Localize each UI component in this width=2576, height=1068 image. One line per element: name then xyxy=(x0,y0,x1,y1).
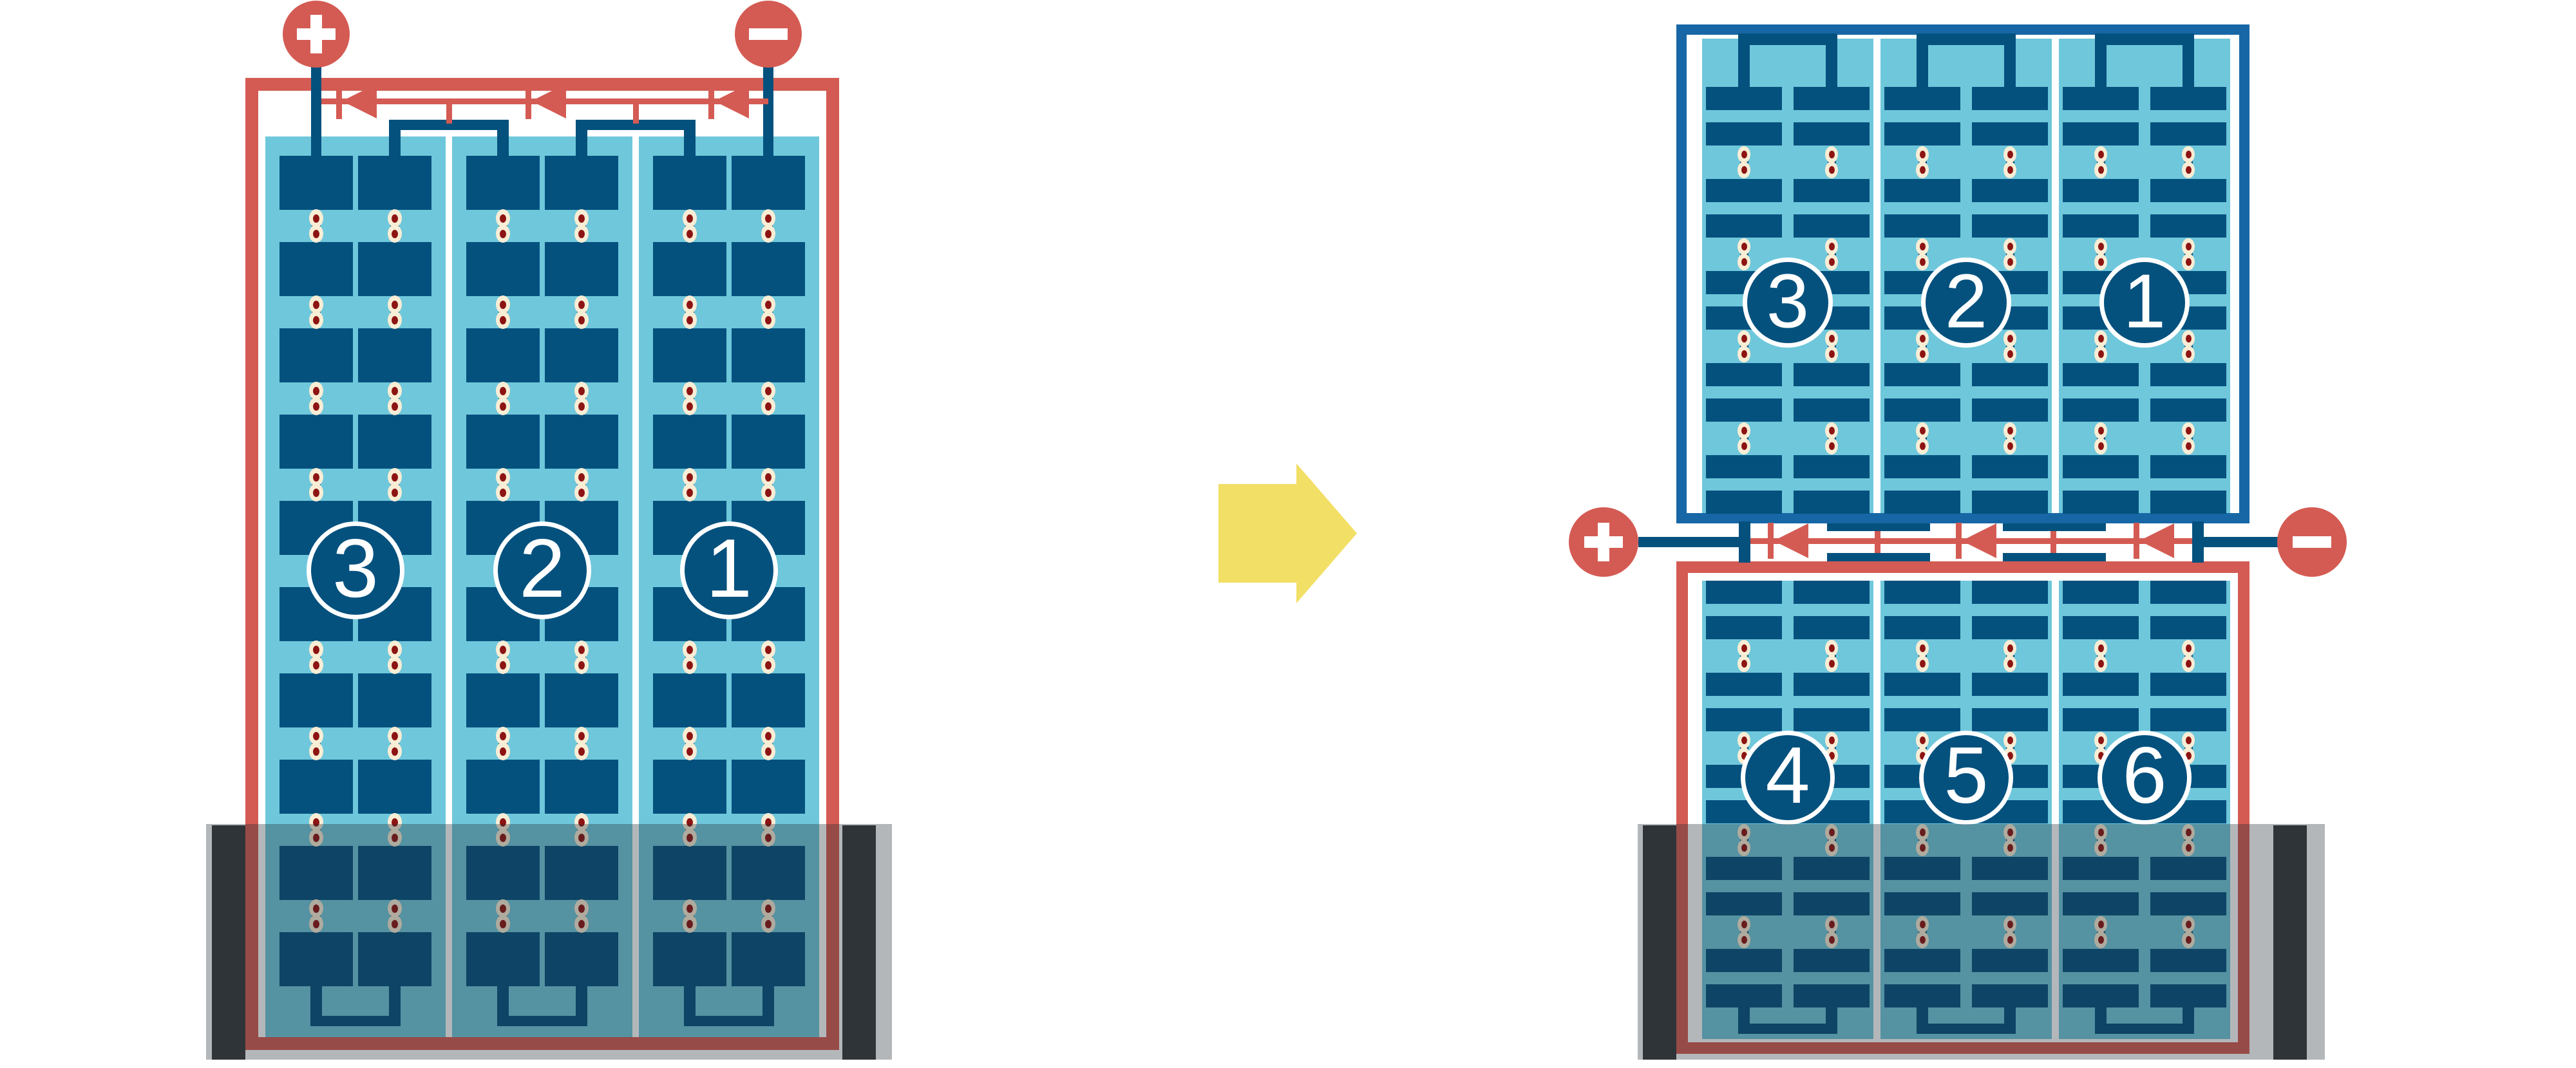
solder-joint-core xyxy=(1920,736,1926,744)
solder-joint-core xyxy=(392,732,398,740)
solder-joint-core xyxy=(2007,736,2013,744)
solder-joint-core xyxy=(1920,442,1926,450)
substring-number: 1 xyxy=(2123,257,2166,345)
solder-joint-core xyxy=(1829,350,1835,358)
solder-joint-core xyxy=(500,387,506,395)
bypass-diode-icon xyxy=(714,84,749,118)
solar-cell xyxy=(1794,491,1870,514)
solder-joint-core xyxy=(578,230,585,238)
solar-cell xyxy=(1972,708,2048,731)
solar-cell xyxy=(2150,398,2226,422)
solar-cell xyxy=(358,760,431,814)
solar-cell xyxy=(1884,581,1960,604)
solar-cell xyxy=(1706,87,1782,110)
solder-joint-core xyxy=(2186,644,2192,652)
solder-joint-core xyxy=(2098,350,2104,358)
solder-joint-core xyxy=(1741,442,1747,450)
terminal-wire xyxy=(763,64,773,156)
solar-cell xyxy=(2063,398,2139,422)
solar-cell xyxy=(1794,708,1870,731)
solar-cell xyxy=(466,156,540,210)
solder-joint-core xyxy=(765,661,772,670)
solder-joint-core xyxy=(313,661,319,670)
busbar-top-connector xyxy=(1917,33,2016,87)
solder-joint-core xyxy=(1920,350,1926,358)
shading-overlay xyxy=(206,824,892,1060)
bypass-diode-icon xyxy=(531,84,566,118)
busbar-tab xyxy=(1827,523,1930,531)
bypass-diode-icon xyxy=(1774,523,1808,558)
solder-joint-core xyxy=(392,747,398,756)
solder-joint-core xyxy=(2186,335,2192,342)
solder-joint-core xyxy=(578,646,585,654)
solder-joint-core xyxy=(1741,736,1747,744)
solder-joint-core xyxy=(687,747,693,756)
solar-cell xyxy=(545,760,618,814)
solar-cell xyxy=(1972,616,2048,639)
solar-cell xyxy=(279,156,353,210)
solar-cell xyxy=(1794,179,1870,202)
solar-cell xyxy=(653,760,726,814)
solar-cell xyxy=(653,328,726,382)
solder-joint-core xyxy=(2098,258,2104,266)
solder-joint-core xyxy=(687,214,693,223)
solder-joint-core xyxy=(2186,442,2192,450)
solder-joint-core xyxy=(1920,243,1926,250)
solar-cell xyxy=(1794,616,1870,639)
solder-joint-core xyxy=(392,402,398,411)
solder-joint-core xyxy=(1741,151,1747,158)
solar-cell xyxy=(545,242,618,296)
solar-cell xyxy=(1972,122,2048,145)
solder-joint-core xyxy=(578,473,585,482)
solder-joint-core xyxy=(2186,151,2192,158)
solder-joint-core xyxy=(392,387,398,395)
solder-joint-core xyxy=(765,301,772,309)
solar-cell xyxy=(2063,363,2139,386)
busbar-tab xyxy=(2003,553,2106,561)
solder-joint-core xyxy=(578,402,585,411)
solar-cell xyxy=(1706,581,1782,604)
solar-cell xyxy=(1706,616,1782,639)
solder-joint-core xyxy=(578,301,585,309)
bypass-diode-icon xyxy=(2134,523,2139,559)
solar-cell xyxy=(2150,581,2226,604)
solar-cell xyxy=(732,673,805,727)
solar-cell xyxy=(279,760,353,814)
minus-icon xyxy=(749,28,788,40)
solder-joint-core xyxy=(687,230,693,238)
substring-number-badge: 4 xyxy=(1741,731,1835,825)
substring-number: 1 xyxy=(706,521,752,616)
solar-cell xyxy=(1884,708,1960,731)
solder-joint-core xyxy=(392,316,398,324)
solder-joint-core xyxy=(2186,258,2192,266)
solder-joint-core xyxy=(578,214,585,223)
substring-number: 4 xyxy=(1766,730,1810,821)
solar-cell xyxy=(1972,398,2048,422)
solder-joint-core xyxy=(1920,335,1926,342)
solder-joint-core xyxy=(313,732,319,740)
solder-joint-core xyxy=(765,402,772,411)
solder-joint-core xyxy=(687,402,693,411)
solder-joint-core xyxy=(500,316,506,324)
solar-cell xyxy=(545,328,618,382)
bypass-diode-icon xyxy=(336,83,342,119)
substring-number-badge: 6 xyxy=(2098,731,2192,825)
solder-joint-core xyxy=(500,747,506,756)
bypass-diode-icon xyxy=(526,83,531,119)
solar-cell xyxy=(1794,455,1870,478)
solder-joint-core xyxy=(2007,166,2013,174)
solar-cell xyxy=(732,328,805,382)
solar-cell xyxy=(653,156,726,210)
solder-joint-core xyxy=(1829,258,1835,266)
solder-joint-core xyxy=(500,489,506,497)
solar-cell xyxy=(2150,87,2226,110)
solar-cell xyxy=(545,415,618,469)
solder-joint-core xyxy=(2186,660,2192,668)
plus-icon xyxy=(310,15,322,53)
solar-cell xyxy=(2150,708,2226,731)
solder-joint-core xyxy=(313,214,319,223)
solder-joint-core xyxy=(1829,427,1835,435)
substring-number-badge: 1 xyxy=(680,521,778,619)
solder-joint-core xyxy=(1741,335,1747,342)
solder-joint-core xyxy=(578,661,585,670)
solder-joint-core xyxy=(500,214,506,223)
bypass-diode-icon xyxy=(1956,523,1962,559)
solar-cell xyxy=(2150,616,2226,639)
solder-joint-core xyxy=(578,732,585,740)
solder-joint-core xyxy=(2098,427,2104,435)
solar-cell xyxy=(732,760,805,814)
solder-joint-core xyxy=(1920,151,1926,158)
solder-joint-core xyxy=(578,316,585,324)
solder-joint-core xyxy=(392,661,398,670)
solar-cell xyxy=(1794,581,1870,604)
solar-cell xyxy=(2150,491,2226,514)
solder-joint-core xyxy=(765,732,772,740)
solar-cell xyxy=(279,328,353,382)
terminal-wire xyxy=(1638,537,1745,547)
solder-joint-core xyxy=(2098,442,2104,450)
solar-cell xyxy=(2150,214,2226,238)
solder-joint-core xyxy=(1829,442,1835,450)
solder-joint-core xyxy=(2007,427,2013,435)
solder-joint-core xyxy=(1920,427,1926,435)
substring-number-badge: 2 xyxy=(1921,258,2011,348)
solder-joint-core xyxy=(1829,644,1835,652)
solder-joint-core xyxy=(313,387,319,395)
busbar-tab xyxy=(2003,523,2106,531)
solder-joint-core xyxy=(500,301,506,309)
solder-joint-core xyxy=(500,646,506,654)
solder-joint-core xyxy=(2007,243,2013,250)
substring-number: 5 xyxy=(1944,730,1989,821)
substring-number: 3 xyxy=(332,521,379,616)
solar-cell xyxy=(1972,673,2048,696)
solder-joint-core xyxy=(2007,442,2013,450)
solder-joint-core xyxy=(392,473,398,482)
substring-number-badge: 3 xyxy=(307,521,404,619)
solar-cell xyxy=(2063,581,2139,604)
solder-joint-core xyxy=(2098,335,2104,342)
solar-cell xyxy=(1794,398,1870,422)
terminal-wire xyxy=(311,64,321,156)
solder-joint-core xyxy=(765,214,772,223)
solder-joint-core xyxy=(392,230,398,238)
solder-joint-core xyxy=(392,214,398,223)
busbar-top-connector xyxy=(576,120,696,156)
bypass-diode-icon xyxy=(342,84,377,118)
solar-cell xyxy=(1972,179,2048,202)
solar-cell xyxy=(2063,87,2139,110)
solder-joint-core xyxy=(1920,644,1926,652)
solder-joint-core xyxy=(313,230,319,238)
solder-joint-core xyxy=(1741,427,1747,435)
solar-cell xyxy=(1972,214,2048,238)
solar-cell xyxy=(1972,491,2048,514)
solder-joint-core xyxy=(2007,335,2013,342)
solder-joint-core xyxy=(313,747,319,756)
solar-cell xyxy=(2150,673,2226,696)
solar-cell xyxy=(2063,179,2139,202)
solder-joint-core xyxy=(2098,243,2104,250)
solder-joint-core xyxy=(765,230,772,238)
solder-joint-core xyxy=(765,473,772,482)
solder-joint-core xyxy=(500,230,506,238)
solder-joint-core xyxy=(1920,660,1926,668)
solar-cell xyxy=(1972,87,2048,110)
solder-joint-core xyxy=(2098,644,2104,652)
solar-cell xyxy=(2063,491,2139,514)
solder-joint-core xyxy=(313,402,319,411)
solar-cell xyxy=(1972,455,2048,478)
solar-cell xyxy=(466,415,540,469)
solder-joint-core xyxy=(2098,166,2104,174)
solder-joint-core xyxy=(2098,660,2104,668)
solder-joint-core xyxy=(500,473,506,482)
solar-cell xyxy=(732,242,805,296)
busbar-top-connector xyxy=(1738,33,1837,87)
solar-cell xyxy=(1884,673,1960,696)
solar-cell xyxy=(279,673,353,727)
solder-joint-core xyxy=(687,646,693,654)
solder-joint-core xyxy=(313,646,319,654)
solar-cell xyxy=(2063,616,2139,639)
solder-joint-core xyxy=(578,489,585,497)
substring-number-badge: 3 xyxy=(1743,258,1833,348)
solder-joint-core xyxy=(1829,736,1835,744)
solder-joint-core xyxy=(392,646,398,654)
solder-joint-core xyxy=(687,316,693,324)
solar-cell xyxy=(466,673,540,727)
solder-joint-core xyxy=(313,301,319,309)
solar-cell xyxy=(358,673,431,727)
solder-joint-core xyxy=(500,732,506,740)
busbar-top-connector xyxy=(2095,33,2194,87)
solar-cell xyxy=(732,415,805,469)
solder-joint-core xyxy=(313,489,319,497)
solar-cell xyxy=(1706,179,1782,202)
bypass-diode-icon xyxy=(1962,523,1996,558)
solder-joint-core xyxy=(2186,166,2192,174)
solder-joint-core xyxy=(1829,243,1835,250)
solder-joint-core xyxy=(500,661,506,670)
solder-joint-core xyxy=(2007,350,2013,358)
solar-cell xyxy=(653,415,726,469)
solder-joint-core xyxy=(1920,166,1926,174)
solar-cell xyxy=(1706,491,1782,514)
solar-cell xyxy=(732,156,805,210)
solder-joint-core xyxy=(1829,151,1835,158)
plus-icon xyxy=(1598,523,1609,561)
solder-joint-core xyxy=(2007,258,2013,266)
solar-cell xyxy=(2063,708,2139,731)
solar-cell xyxy=(1706,122,1782,145)
solar-cell xyxy=(2063,122,2139,145)
solder-joint-core xyxy=(687,489,693,497)
solar-cell xyxy=(653,673,726,727)
solar-cell xyxy=(1706,673,1782,696)
solar-cell xyxy=(1884,616,1960,639)
shading-overlay xyxy=(1638,824,2325,1060)
solar-cell xyxy=(2150,179,2226,202)
substring-number: 6 xyxy=(2123,730,2167,821)
solder-joint-core xyxy=(687,387,693,395)
solar-cell xyxy=(2150,122,2226,145)
solar-cell xyxy=(1884,363,1960,386)
solder-joint-core xyxy=(2007,660,2013,668)
solar-cell xyxy=(1884,398,1960,422)
solder-joint-core xyxy=(687,661,693,670)
solder-joint-core xyxy=(392,489,398,497)
solar-cell xyxy=(466,328,540,382)
substring-number: 2 xyxy=(519,521,565,616)
busbar-top-connector xyxy=(389,120,509,156)
solder-joint-core xyxy=(687,732,693,740)
solar-cell xyxy=(545,156,618,210)
substring-number-badge: 5 xyxy=(1919,731,2013,825)
solar-cell xyxy=(2063,673,2139,696)
solder-joint-core xyxy=(765,747,772,756)
solar-cell xyxy=(358,156,431,210)
solar-cell xyxy=(2150,363,2226,386)
solar-cell xyxy=(1884,214,1960,238)
solder-joint-core xyxy=(1741,350,1747,358)
solar-cell xyxy=(1884,87,1960,110)
diode-tap-line xyxy=(633,101,639,124)
substring-number: 3 xyxy=(1766,257,1809,345)
solder-joint-core xyxy=(2186,427,2192,435)
solar-cell xyxy=(2063,455,2139,478)
solder-joint-core xyxy=(1829,660,1835,668)
solder-joint-core xyxy=(313,473,319,482)
solder-joint-core xyxy=(2007,151,2013,158)
solar-cell xyxy=(1884,491,1960,514)
solder-joint-core xyxy=(2007,644,2013,652)
solder-joint-core xyxy=(2186,736,2192,744)
solar-cell xyxy=(2063,214,2139,238)
solder-joint-core xyxy=(1741,660,1747,668)
solder-joint-core xyxy=(1741,258,1747,266)
solar-cell xyxy=(653,242,726,296)
bypass-diode-icon xyxy=(2139,523,2174,558)
solder-joint-core xyxy=(1741,644,1747,652)
solar-cell xyxy=(358,242,431,296)
solar-cell xyxy=(466,760,540,814)
solar-cell xyxy=(279,242,353,296)
solder-joint-core xyxy=(313,316,319,324)
solar-cell xyxy=(279,415,353,469)
solder-joint-core xyxy=(578,387,585,395)
substring-number-badge: 2 xyxy=(493,521,591,619)
solar-cell xyxy=(1706,708,1782,731)
solar-cell xyxy=(1794,87,1870,110)
solar-cell xyxy=(1706,363,1782,386)
solar-cell xyxy=(1706,398,1782,422)
solder-joint-core xyxy=(1829,166,1835,174)
solar-cell xyxy=(1884,122,1960,145)
solder-joint-core xyxy=(1741,166,1747,174)
bypass-diode-icon xyxy=(1768,523,1774,559)
solar-cell xyxy=(1794,673,1870,696)
solder-joint-core xyxy=(765,489,772,497)
solar-cell xyxy=(358,415,431,469)
solder-joint-core xyxy=(687,473,693,482)
solder-joint-core xyxy=(1741,243,1747,250)
solder-joint-core xyxy=(2186,350,2192,358)
solder-joint-core xyxy=(765,316,772,324)
minus-icon xyxy=(2293,536,2331,548)
diode-tap-line xyxy=(446,101,452,124)
solar-cell xyxy=(545,673,618,727)
solar-cell xyxy=(358,328,431,382)
solar-cell xyxy=(1794,122,1870,145)
solar-cell xyxy=(1884,179,1960,202)
solar-cell xyxy=(1972,363,2048,386)
solder-joint-core xyxy=(500,402,506,411)
substring-number-badge: 1 xyxy=(2099,258,2190,348)
solder-joint-core xyxy=(2098,151,2104,158)
solder-joint-core xyxy=(765,646,772,654)
solder-joint-core xyxy=(2186,243,2192,250)
busbar-tab xyxy=(1827,553,1930,561)
solder-joint-core xyxy=(578,747,585,756)
solder-joint-core xyxy=(765,387,772,395)
solar-cell xyxy=(1794,363,1870,386)
solar-cell xyxy=(1972,581,2048,604)
solar-cell xyxy=(2150,455,2226,478)
diagram-canvas: 321 321456 xyxy=(0,0,2576,1068)
solder-joint-core xyxy=(1920,258,1926,266)
solar-cell xyxy=(1706,455,1782,478)
bypass-diode-icon xyxy=(708,83,714,119)
right-arrow-icon xyxy=(1218,464,1357,603)
solder-joint-core xyxy=(687,301,693,309)
substring-number: 2 xyxy=(1945,257,1987,345)
solar-cell xyxy=(1884,455,1960,478)
solder-joint-core xyxy=(392,301,398,309)
solar-cell xyxy=(1794,214,1870,238)
terminal-wire xyxy=(2198,537,2278,547)
solder-joint-core xyxy=(2098,736,2104,744)
solder-joint-core xyxy=(1829,335,1835,342)
solar-cell xyxy=(466,242,540,296)
solar-cell xyxy=(1706,214,1782,238)
